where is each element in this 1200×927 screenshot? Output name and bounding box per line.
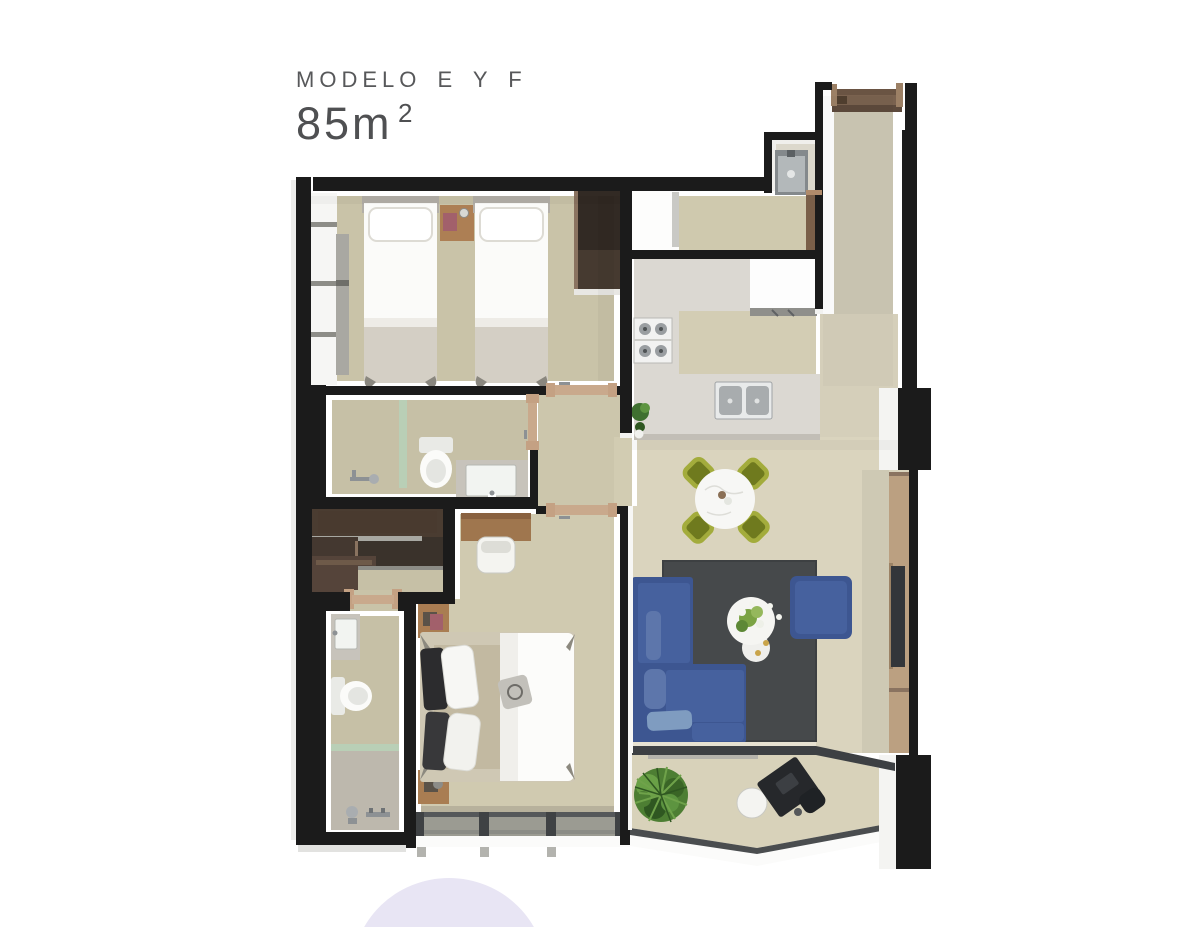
svg-text:85m: 85m [296, 98, 393, 149]
svg-text:MODELO E Y F: MODELO E Y F [296, 67, 527, 92]
svg-text:2: 2 [398, 98, 412, 128]
